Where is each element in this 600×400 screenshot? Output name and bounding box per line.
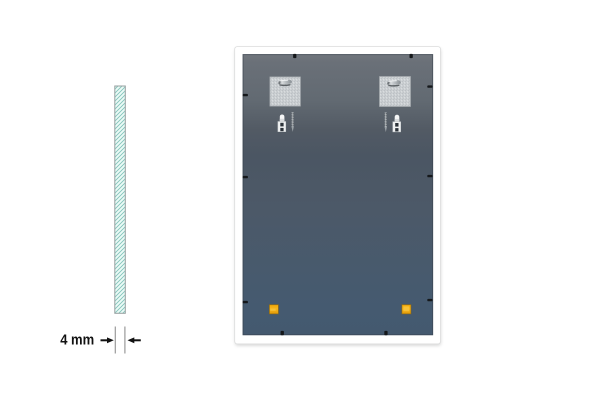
- svg-text:4 mm: 4 mm: [60, 333, 94, 349]
